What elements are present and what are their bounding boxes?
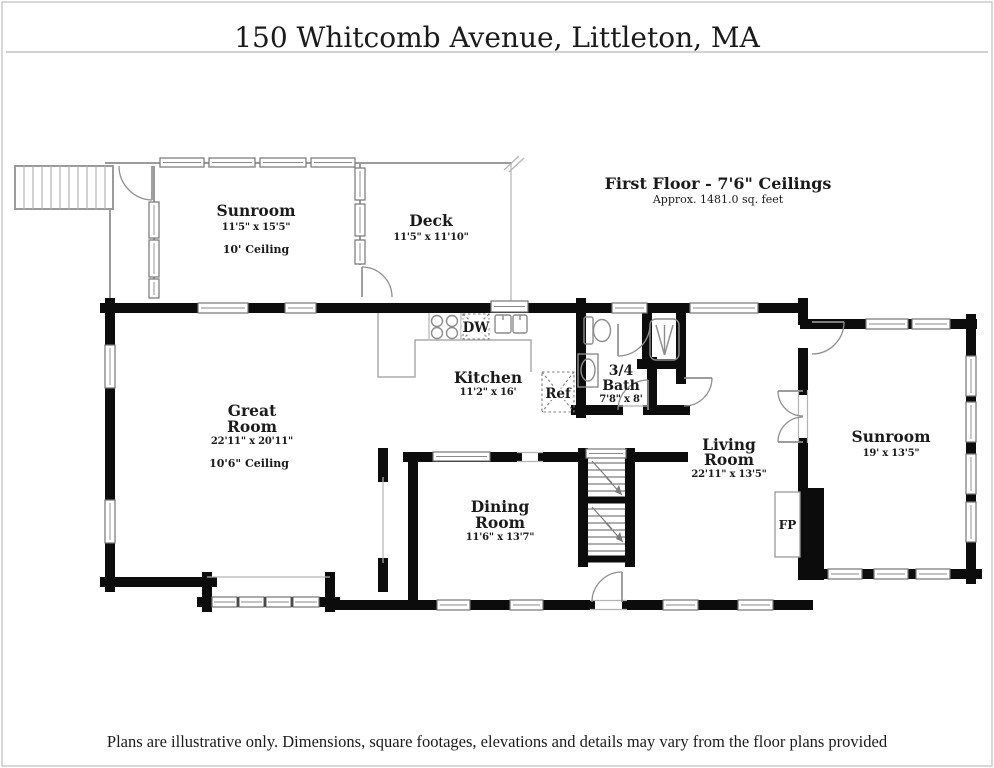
kitchen-sink-icon	[495, 315, 527, 333]
room-ceiling: 10' Ceiling	[223, 243, 290, 256]
label-deck: Deck 11'5" x 11'10"	[393, 211, 468, 243]
chimney	[798, 488, 824, 580]
room-name-1: 3/4	[609, 363, 634, 379]
room-dims: 11'5" x 15'5"	[222, 222, 291, 233]
room-dims: 11'6" x 13'7"	[466, 532, 535, 543]
floor-area: Approx. 1481.0 sq. feet	[652, 193, 784, 206]
walls	[105, 303, 977, 607]
label-great-room: Great Room 22'11" x 20'11" 10'6" Ceiling	[209, 401, 293, 470]
shower-icon	[650, 319, 679, 360]
door-closet	[684, 378, 712, 406]
room-name-2: Room	[704, 450, 755, 469]
label-bath: 3/4 Bath 7'8" x 8'	[599, 363, 642, 405]
page-title: 150 Whitcomb Avenue, Littleton, MA	[234, 21, 760, 54]
door-sunroom-to-deck	[362, 267, 392, 297]
fireplace-label: FP	[779, 518, 797, 532]
toilet-icon	[584, 317, 611, 344]
label-dining-room: Dining Room 11'6" x 13'7"	[466, 497, 535, 543]
floor-label: First Floor - 7'6" Ceilings	[605, 174, 832, 193]
stove-icon	[432, 316, 458, 339]
deck-stairs	[15, 166, 113, 209]
refrigerator-label: Ref	[545, 386, 572, 402]
room-dims: 11'5" x 11'10"	[393, 232, 468, 243]
room-ceiling: 10'6" Ceiling	[209, 457, 289, 470]
room-dims: 11'2" x 16'	[460, 387, 517, 398]
room-name-2: Bath	[602, 378, 640, 394]
room-name: Deck	[409, 211, 453, 230]
disclaimer: Plans are illustrative only. Dimensions,…	[107, 732, 888, 751]
floor-plan-page: 150 Whitcomb Avenue, Littleton, MA First…	[0, 0, 994, 768]
room-name: Sunroom	[217, 201, 297, 220]
room-dims: 22'11" x 20'11"	[211, 436, 293, 447]
label-kitchen: Kitchen 11'2" x 16'	[454, 368, 522, 398]
room-name-2: Room	[227, 417, 278, 436]
french-doors-living-to-sunroom	[778, 391, 803, 442]
floor-plan-drawing: 150 Whitcomb Avenue, Littleton, MA First…	[0, 0, 994, 768]
staircase	[588, 461, 625, 551]
room-dims: 7'8" x 8'	[599, 394, 642, 405]
room-dims: 19' x 13'5"	[863, 448, 920, 459]
room-name: Kitchen	[454, 368, 522, 387]
label-living-room: Living Room 22'11" x 13'5"	[691, 435, 766, 480]
door-front-entry	[592, 572, 622, 602]
label-sunroom-nw: Sunroom 11'5" x 15'5" 10' Ceiling	[217, 201, 297, 256]
door-sunroom-nw	[119, 166, 152, 200]
room-name: Sunroom	[852, 427, 932, 446]
dishwasher-label: DW	[463, 320, 491, 336]
label-sunroom-east: Sunroom 19' x 13'5"	[852, 427, 932, 459]
sunroom-nw-and-deck-walls	[105, 156, 524, 303]
room-dims: 22'11" x 13'5"	[691, 469, 766, 480]
room-name-2: Room	[475, 513, 526, 532]
